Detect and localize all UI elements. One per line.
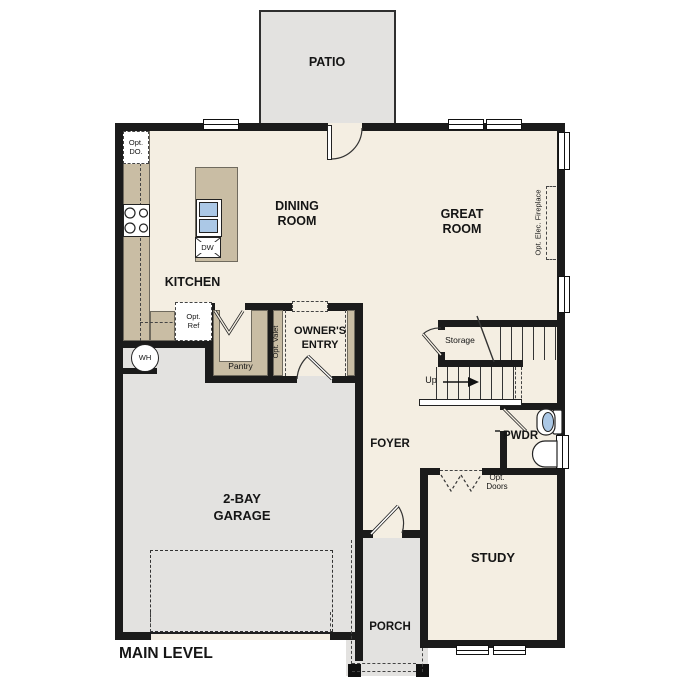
floor-plan: Opt. DO. Opt. Ref WH bbox=[0, 0, 687, 687]
great-room-label: GREAT ROOM bbox=[412, 207, 512, 238]
storage-label: Storage bbox=[437, 336, 483, 346]
front-door bbox=[371, 506, 404, 534]
opt-valet-label: Opt. Valet bbox=[272, 313, 282, 371]
opt-fireplace-label: Opt. Elec. Fireplace bbox=[535, 177, 546, 269]
study-label: STUDY bbox=[443, 550, 543, 566]
foyer-label: FOYER bbox=[362, 437, 418, 451]
pantry-bifold-door bbox=[215, 311, 243, 333]
pedestal-sink bbox=[533, 441, 558, 467]
garage-label: 2-BAY GARAGE bbox=[192, 491, 292, 525]
patio-door-arc bbox=[332, 128, 362, 159]
main-level-title: MAIN LEVEL bbox=[119, 645, 279, 664]
pantry-label: Pantry bbox=[213, 362, 268, 372]
porch-label: PORCH bbox=[360, 620, 420, 634]
pwdr-door bbox=[495, 409, 526, 431]
patio-label: PATIO bbox=[277, 55, 377, 70]
dining-room-label: DINING ROOM bbox=[247, 199, 347, 230]
owners-entry-label: OWNER'S ENTRY bbox=[277, 324, 363, 353]
dw-label: DW bbox=[197, 242, 218, 253]
up-label: Up bbox=[420, 375, 442, 385]
pwdr-label: PWDR bbox=[503, 429, 549, 443]
owners-entry-door bbox=[297, 356, 332, 379]
kitchen-label: KITCHEN bbox=[145, 275, 240, 290]
up-arrow bbox=[443, 377, 479, 387]
cooktop-burners bbox=[125, 208, 148, 233]
opt-doors-label: Opt. Doors bbox=[477, 473, 517, 491]
opt-doors-swing-dashes bbox=[441, 475, 481, 491]
